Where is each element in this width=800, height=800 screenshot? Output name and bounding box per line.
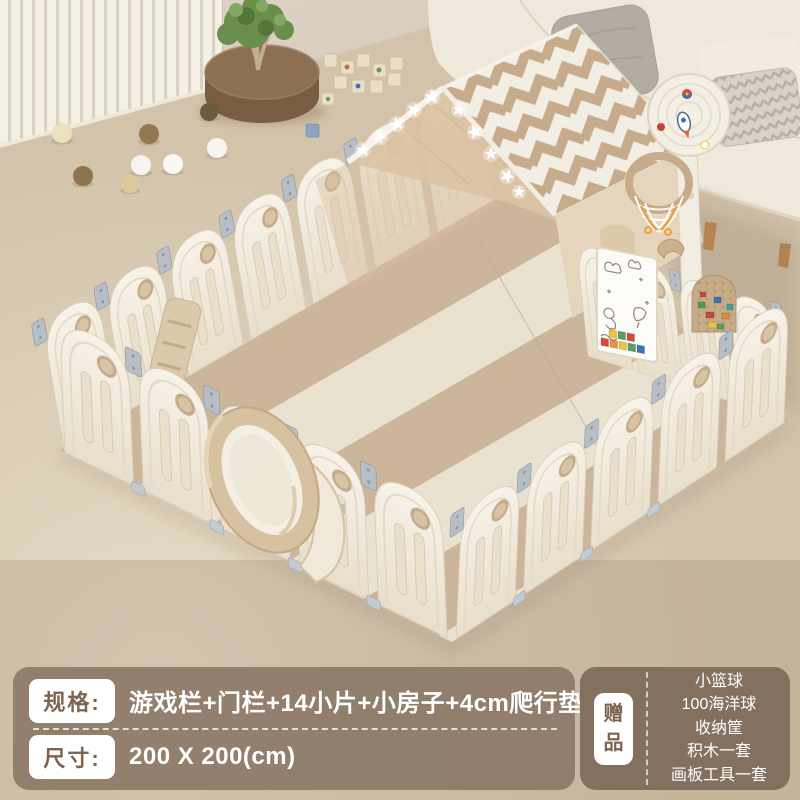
size-row: 尺寸: 200 X 200(cm) [29,731,561,783]
gift-badge: 赠品 [594,693,633,765]
spec-row: 规格: 游戏栏+门栏+14小片+小房子+4cm爬行垫 [29,675,561,727]
spec-panel: 规格: 游戏栏+门栏+14小片+小房子+4cm爬行垫 尺寸: 200 X 200… [13,667,575,790]
flower-sticker [701,141,709,149]
spec-badge: 规格: [29,679,115,723]
gift-item: 小篮球 [695,670,743,694]
building-blocks-board [692,275,736,332]
backboard [648,74,730,156]
red-dot-sticker [657,123,665,131]
gift-item: 100海洋球 [682,693,757,717]
gift-item: 画板工具一套 [671,764,767,788]
size-value: 200 X 200(cm) [129,743,296,771]
drawing-board [597,247,657,363]
gift-item: 收纳筐 [695,717,743,741]
size-badge: 尺寸: [29,735,115,779]
gift-item: 积木一套 [687,740,751,764]
planet-sticker [682,89,692,99]
divider [33,728,557,730]
gift-list: 小篮球 100海洋球 收纳筐 积木一套 画板工具一套 [648,670,790,788]
gift-panel: 赠品 小篮球 100海洋球 收纳筐 积木一套 画板工具一套 [580,667,790,790]
spec-value: 游戏栏+门栏+14小片+小房子+4cm爬行垫 [129,683,583,718]
